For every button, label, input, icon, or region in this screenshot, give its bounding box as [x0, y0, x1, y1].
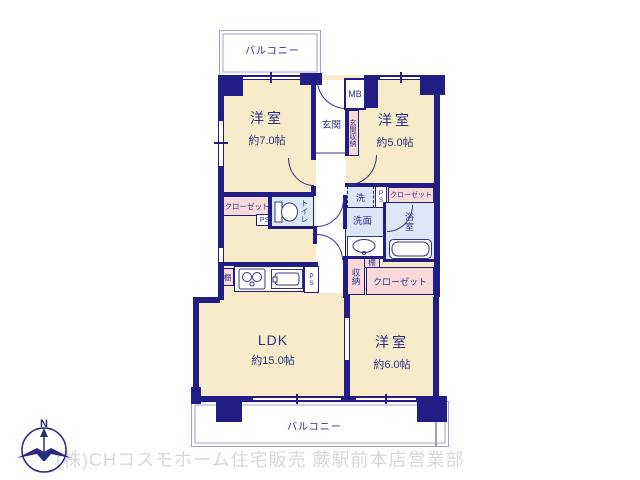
wall-pillar	[364, 76, 378, 108]
closet-west7-label: クローゼット	[225, 201, 270, 212]
stove-icon	[238, 268, 266, 290]
wall	[343, 258, 347, 298]
wall	[268, 226, 317, 229]
hallway	[316, 80, 346, 293]
room-west6: 洋室 約6.0帖	[350, 332, 434, 372]
room-ldk: LDK 約15.0帖	[225, 332, 321, 368]
closet-west7: クローゼット	[222, 196, 272, 216]
balcony-top-label: バルコニー	[245, 47, 300, 57]
entrance-label: 玄関	[322, 121, 341, 131]
wall	[218, 264, 224, 300]
closet-west5: クローゼット	[388, 187, 434, 203]
shelf-kitchen-label: 棚	[224, 272, 232, 283]
wall	[345, 183, 435, 187]
meter-box: MB	[344, 78, 366, 110]
laundry-box: 洗	[347, 186, 374, 208]
closet-west6-label: クローゼット	[373, 275, 427, 288]
wall	[343, 256, 386, 259]
window-tick	[385, 394, 387, 404]
west7-size: 約7.0帖	[248, 132, 285, 148]
room-west5: 洋室 約5.0帖	[352, 110, 438, 150]
wall	[218, 166, 224, 248]
closet-west5-label: クローゼット	[390, 190, 432, 200]
wall-pillar	[216, 402, 242, 422]
floor-plan: バルコニー バルコニー MB 玄関収納 クローゼット PS トイレ 洗 PS ク…	[0, 0, 640, 480]
bathtub-icon	[389, 239, 432, 259]
window	[243, 76, 303, 80]
compass-icon: N	[12, 414, 78, 478]
kitchen-sink-icon	[271, 269, 303, 289]
toilet-icon	[273, 199, 299, 225]
washroom-label: 洗面	[353, 217, 372, 227]
laundry-label: 洗	[356, 191, 365, 204]
window-tick	[400, 72, 402, 83]
wall-pillar	[417, 396, 447, 422]
west7-name: 洋室	[250, 108, 284, 128]
wall	[218, 262, 318, 266]
toilet-label: トイレ	[300, 199, 308, 223]
wall-pillar	[420, 75, 445, 95]
window-tick	[296, 394, 298, 404]
washbasin-icon	[347, 236, 384, 257]
wall	[345, 108, 349, 156]
wall	[383, 202, 386, 258]
west5-name: 洋室	[378, 110, 412, 130]
room-west7: 洋室 約7.0帖	[222, 108, 312, 148]
west6-name: 洋室	[375, 332, 409, 352]
west5-size: 約5.0帖	[376, 134, 413, 150]
ldk-name: LDK	[258, 332, 288, 348]
compass-n: N	[40, 418, 48, 430]
wall	[268, 196, 271, 228]
ps-kitchen-label: PS	[308, 273, 315, 287]
watermark-text: (株)CHコスモホーム住宅販売 蕨駅前本店営業部	[56, 446, 464, 472]
closet-west6: クローゼット	[366, 267, 434, 295]
west6-size: 約6.0帖	[373, 356, 410, 372]
wall	[383, 259, 435, 262]
ldk-size: 約15.0帖	[251, 352, 294, 368]
storage: 収納	[347, 257, 365, 295]
meter-box-label: MB	[348, 89, 362, 99]
balcony-bottom-label: バルコニー	[287, 423, 342, 433]
wall	[218, 192, 316, 196]
wall	[193, 303, 199, 389]
ps-kitchen: PS	[304, 266, 319, 293]
storage-label: 収納	[350, 268, 362, 285]
window-tick	[270, 72, 272, 83]
entrance-step-line	[316, 152, 346, 154]
